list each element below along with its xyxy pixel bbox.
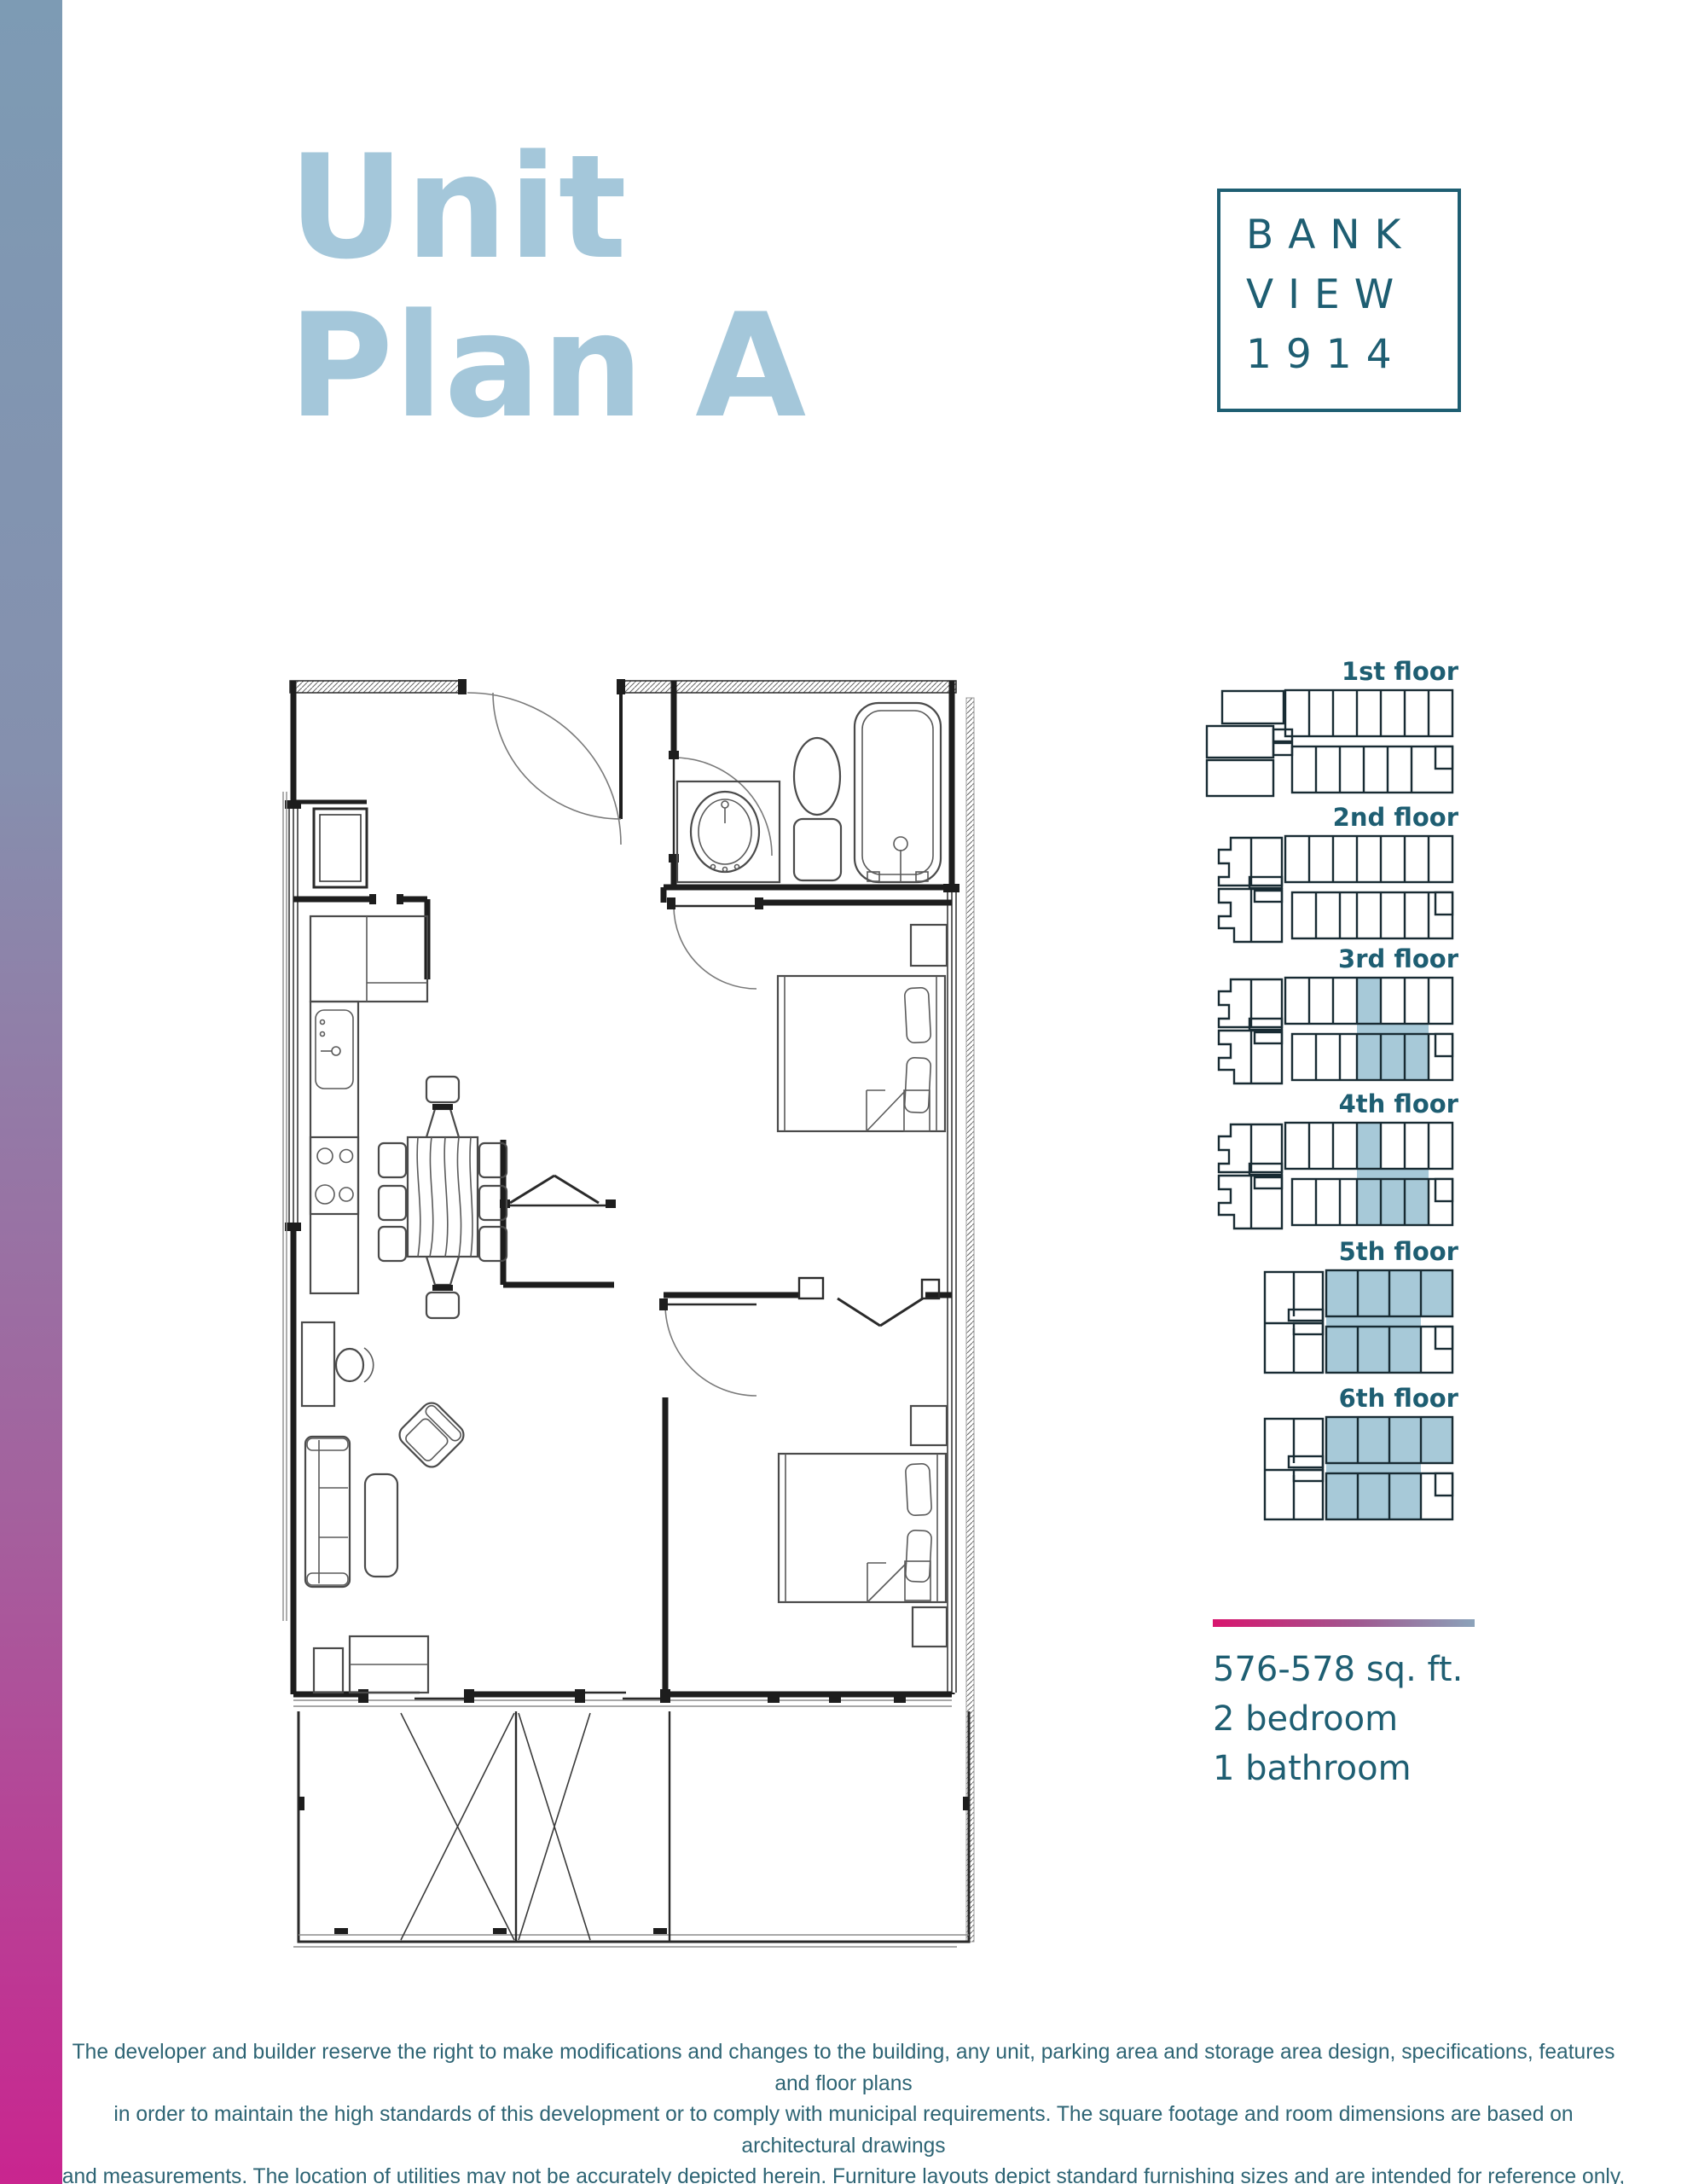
floor-label-1: 1st floor — [1196, 657, 1460, 686]
page-title-line2: Plan A — [288, 287, 807, 445]
floor-plan-2-svg — [1196, 834, 1460, 947]
unit-floor-plan-drawing — [281, 672, 991, 1954]
disclaimer-line-3: and measurements. The location of utilit… — [60, 2162, 1627, 2184]
floor-plan-5-svg — [1196, 1269, 1460, 1381]
floor-label-6: 6th floor — [1196, 1384, 1460, 1413]
page-title-line1: Unit — [288, 128, 807, 287]
floor-plan-1-svg — [1196, 688, 1460, 801]
floor-label-5: 5th floor — [1196, 1237, 1460, 1266]
stat-bedrooms: 2 bedroom — [1213, 1694, 1463, 1744]
stat-bathrooms: 1 bathroom — [1213, 1744, 1463, 1793]
floor-label-2: 2nd floor — [1196, 803, 1460, 832]
brochure-page: Unit Plan A BANK VIEW 1914 — [0, 0, 1687, 2184]
disclaimer-line-2: in order to maintain the high standards … — [60, 2100, 1627, 2162]
floor-diagram-3: 3rd floor — [1196, 944, 1460, 1089]
unit-stats: 576-578 sq. ft. 2 bedroom 1 bathroom — [1213, 1645, 1463, 1793]
floor-plan-6-svg — [1196, 1415, 1460, 1528]
page-title: Unit Plan A — [288, 128, 807, 445]
stat-area: 576-578 sq. ft. — [1213, 1645, 1463, 1694]
disclaimer-line-1: The developer and builder reserve the ri… — [60, 2037, 1627, 2100]
floor-plan-svg — [281, 672, 991, 1954]
floor-plan-4-svg — [1196, 1121, 1460, 1234]
floor-diagram-5: 5th floor — [1196, 1237, 1460, 1381]
floor-diagram-1: 1st floor — [1196, 657, 1460, 801]
floor-label-4: 4th floor — [1196, 1089, 1460, 1118]
floor-label-3: 3rd floor — [1196, 944, 1460, 973]
floor-diagram-6: 6th floor — [1196, 1384, 1460, 1528]
gradient-side-bar — [0, 0, 62, 2184]
floor-diagram-2: 2nd floor — [1196, 803, 1460, 947]
floor-diagram-4: 4th floor — [1196, 1089, 1460, 1234]
floor-plan-3-svg — [1196, 976, 1460, 1089]
building-floor-diagrams: 1st floor 2nd floor 3rd floor 4th floor … — [1196, 0, 1460, 2184]
disclaimer: The developer and builder reserve the ri… — [60, 2037, 1627, 2184]
gradient-divider-line — [1213, 1619, 1475, 1627]
